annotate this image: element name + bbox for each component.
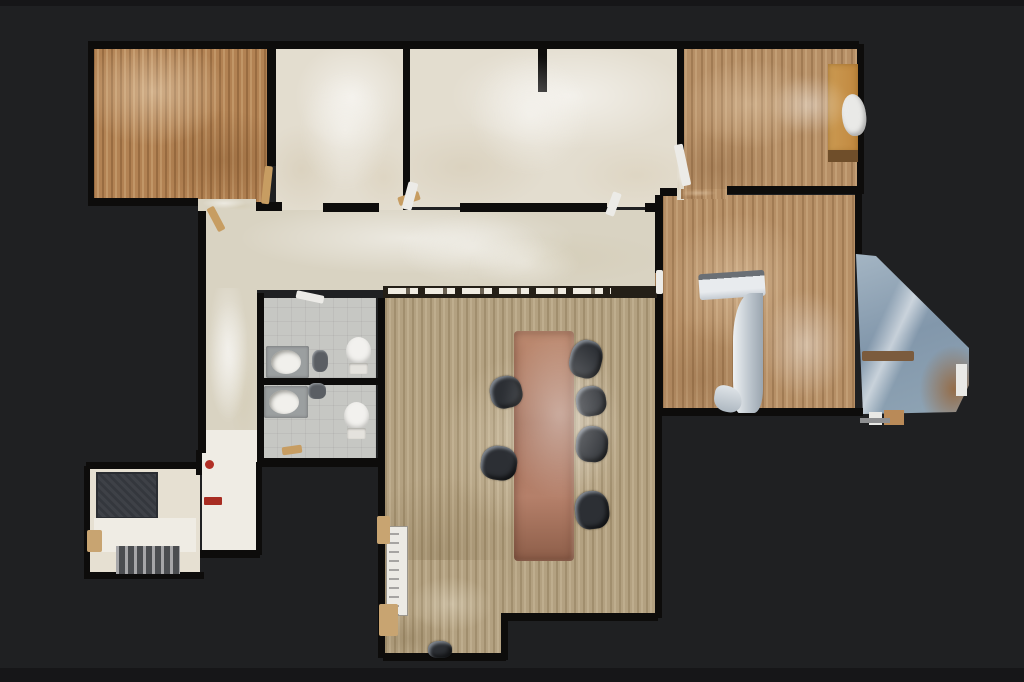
entry-steps [116, 546, 180, 574]
cabinet [377, 516, 390, 544]
wall [88, 41, 859, 49]
wall [256, 462, 262, 555]
toilet-tank [349, 363, 368, 374]
desk-edge [828, 150, 858, 162]
wall [84, 466, 90, 578]
corridor-lower[interactable] [202, 430, 258, 552]
office-chair [575, 425, 609, 463]
letterbox-top [0, 0, 1024, 6]
wall [88, 44, 94, 204]
sink [271, 350, 301, 374]
conference-table [514, 331, 574, 561]
wall [655, 408, 863, 416]
bath-fixture [308, 383, 326, 399]
wall [256, 202, 282, 211]
wall [645, 203, 657, 212]
toilet [344, 402, 369, 430]
floorplan-viewport[interactable] [0, 0, 1024, 682]
wall [677, 44, 684, 156]
wall [460, 203, 607, 212]
window-sill-scan [862, 351, 914, 361]
wall [196, 450, 202, 475]
wall [655, 411, 662, 618]
glass-wall-scan [856, 248, 970, 416]
sink [269, 390, 299, 414]
wall [88, 198, 198, 206]
red-equipment [204, 497, 222, 505]
door-leaf [656, 270, 663, 294]
wall [538, 44, 547, 92]
hallway[interactable] [205, 210, 655, 290]
toilet [346, 337, 371, 365]
toilet-tank [347, 428, 366, 439]
wall [200, 550, 260, 558]
wall [257, 458, 381, 467]
floor-patch [681, 189, 727, 199]
wall [198, 207, 206, 453]
room-office-nw[interactable] [93, 48, 267, 204]
wall [855, 192, 862, 254]
floorplan-canvas[interactable] [0, 0, 1024, 682]
office-chair [428, 641, 452, 658]
wall [323, 203, 379, 212]
cabinet [87, 530, 102, 552]
wall [505, 613, 658, 621]
fire-extinguisher [205, 460, 214, 469]
wall [267, 44, 276, 166]
wall [86, 462, 202, 469]
letterbox-bottom [0, 668, 1024, 682]
scan-fragment [956, 364, 967, 396]
scan-fragment [860, 418, 890, 423]
cabinet [379, 604, 398, 636]
bath-fixture [312, 350, 328, 372]
wall [655, 292, 663, 414]
wall [727, 186, 859, 194]
entry-mat [96, 472, 158, 519]
room-office-n1[interactable] [276, 48, 403, 210]
reception-counter [383, 286, 657, 298]
